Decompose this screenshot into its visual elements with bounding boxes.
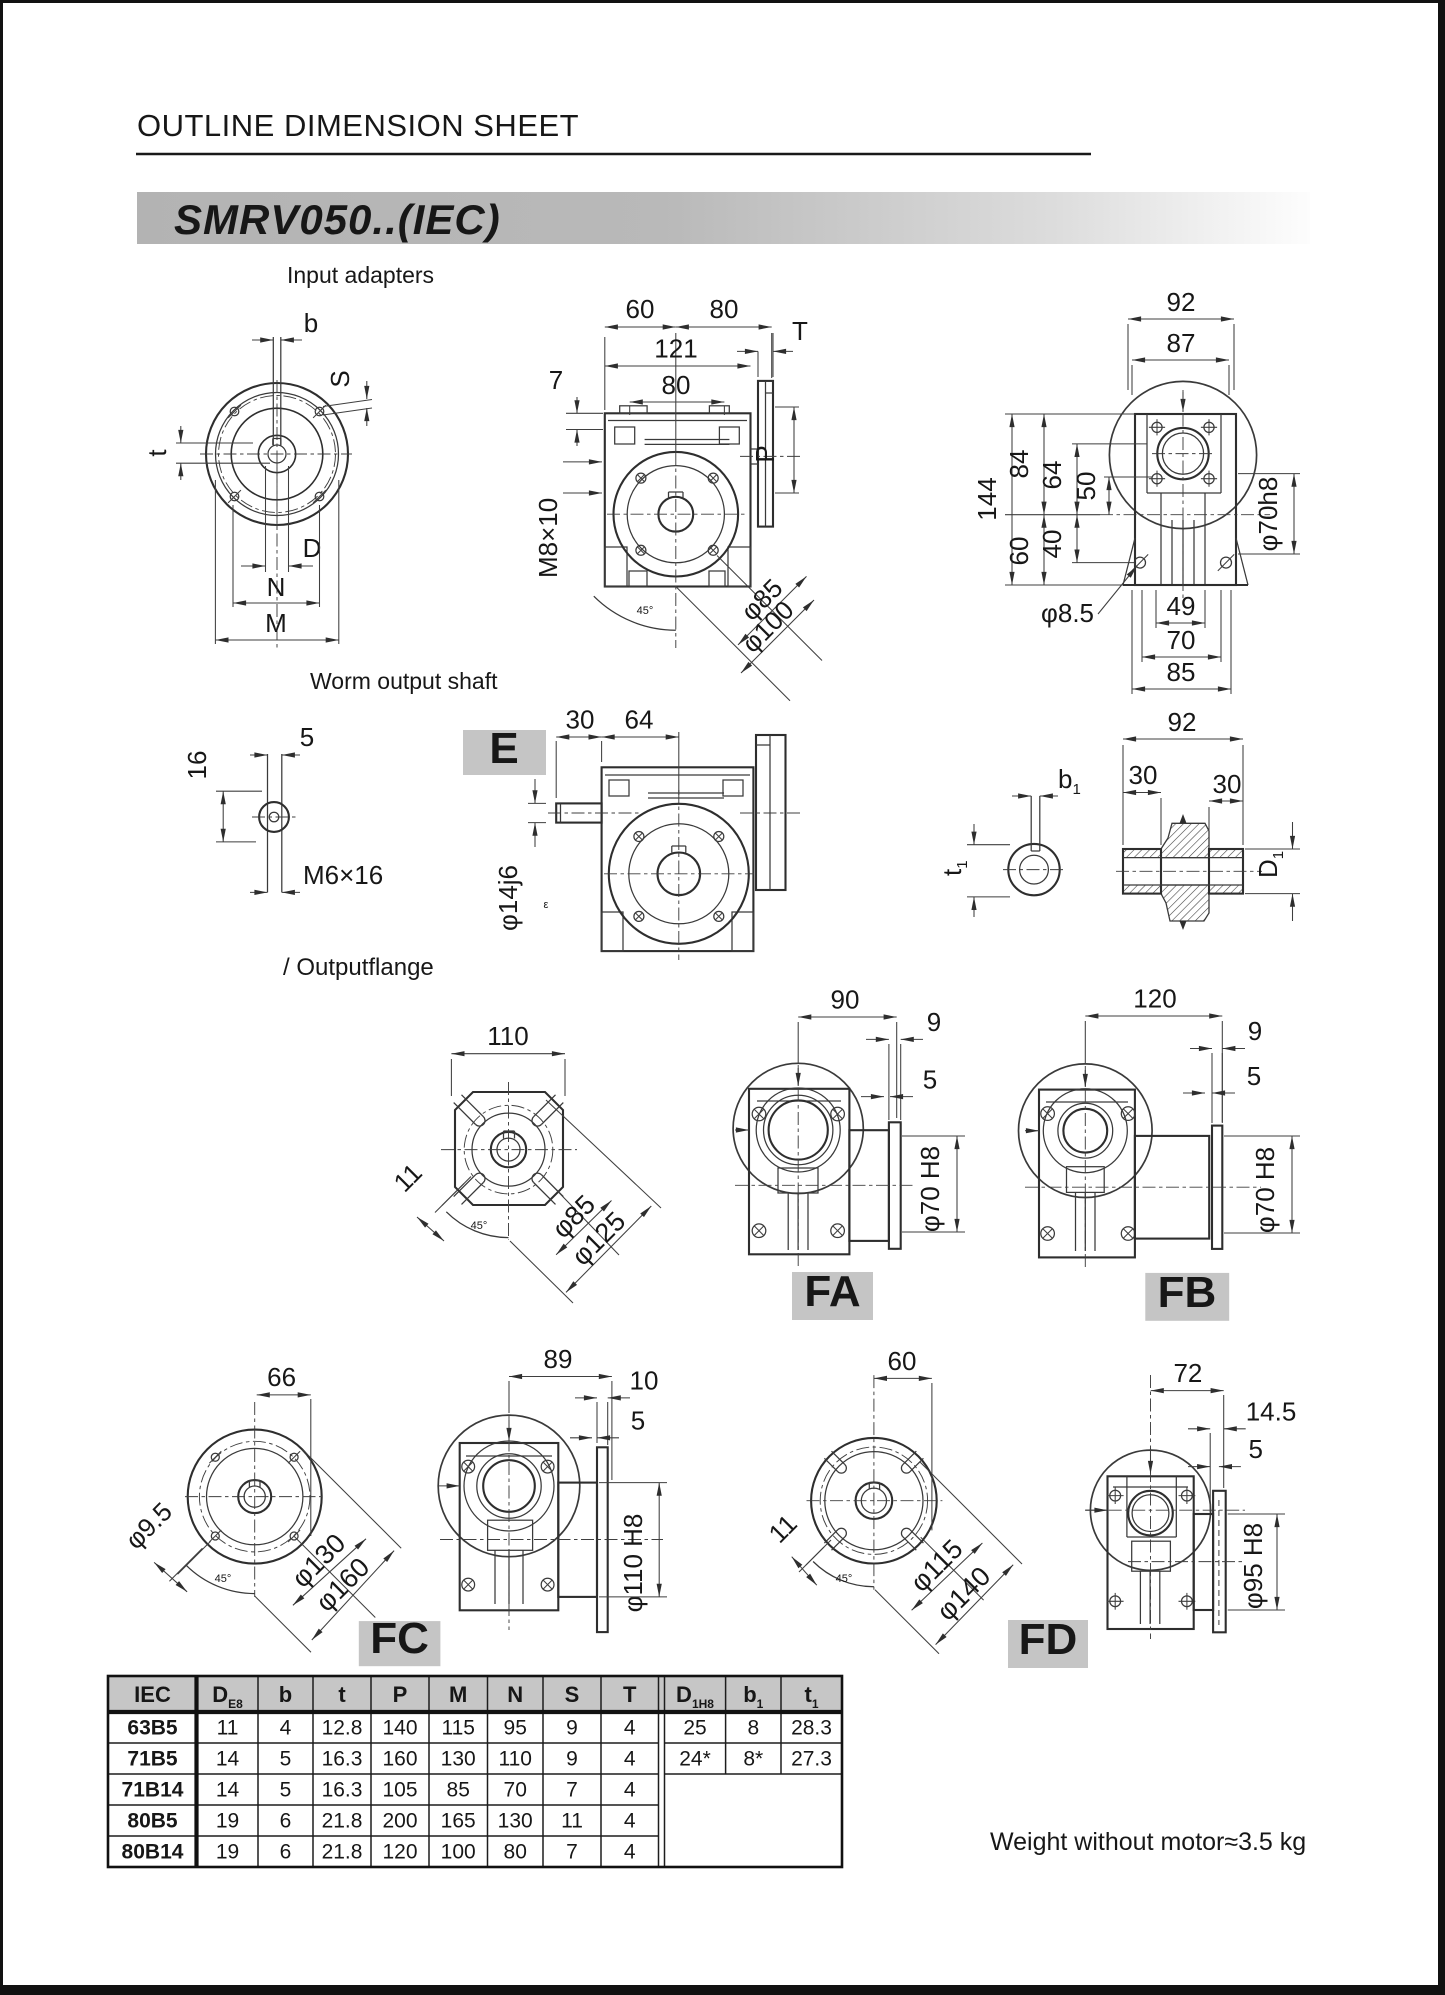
svg-text:b: b xyxy=(279,1682,292,1707)
svg-text:IEC: IEC xyxy=(134,1682,171,1707)
svg-text:6: 6 xyxy=(280,1810,292,1833)
svg-text:120: 120 xyxy=(382,1841,417,1864)
svg-text:92: 92 xyxy=(1167,287,1196,317)
svg-text:24*: 24* xyxy=(679,1748,711,1771)
svg-text:64: 64 xyxy=(625,705,654,735)
svg-text:16.3: 16.3 xyxy=(322,1748,363,1771)
svg-text:84: 84 xyxy=(1004,450,1034,479)
svg-text:5: 5 xyxy=(280,1748,292,1771)
svg-text:7: 7 xyxy=(566,1841,578,1864)
svg-text:P: P xyxy=(393,1682,408,1707)
svg-text:110: 110 xyxy=(498,1748,531,1771)
svg-text:M6×16: M6×16 xyxy=(303,860,383,890)
svg-text:21.8: 21.8 xyxy=(322,1841,363,1864)
svg-text:49: 49 xyxy=(1167,591,1196,621)
svg-text:S: S xyxy=(325,370,355,387)
svg-text:12.8: 12.8 xyxy=(322,1717,363,1740)
svg-text:OUTLINE DIMENSION SHEET: OUTLINE DIMENSION SHEET xyxy=(137,108,579,143)
svg-text:28.3: 28.3 xyxy=(791,1717,832,1740)
svg-text:80: 80 xyxy=(504,1841,527,1864)
svg-text:7: 7 xyxy=(549,365,563,395)
svg-text:80B14: 80B14 xyxy=(122,1841,184,1864)
svg-text:45°: 45° xyxy=(215,1573,232,1585)
svg-text:5: 5 xyxy=(631,1406,645,1436)
svg-text:27.3: 27.3 xyxy=(791,1748,832,1771)
svg-text:70: 70 xyxy=(1167,625,1196,655)
svg-text:90: 90 xyxy=(831,985,860,1015)
svg-text:115: 115 xyxy=(441,1717,474,1740)
svg-text:D: D xyxy=(303,533,322,563)
svg-text:6: 6 xyxy=(280,1841,292,1864)
svg-text:21.8: 21.8 xyxy=(322,1810,363,1833)
svg-text:66: 66 xyxy=(267,1362,296,1392)
svg-text:89: 89 xyxy=(544,1344,573,1374)
svg-text:19: 19 xyxy=(216,1841,239,1864)
svg-text:N: N xyxy=(267,572,286,602)
svg-text:60: 60 xyxy=(888,1346,917,1376)
svg-text:S: S xyxy=(565,1682,580,1707)
svg-text:60: 60 xyxy=(1004,537,1034,566)
svg-text:φ14j6: φ14j6 xyxy=(493,865,523,931)
svg-text:5: 5 xyxy=(300,722,314,752)
svg-text:T: T xyxy=(792,316,808,346)
svg-text:70: 70 xyxy=(504,1779,527,1802)
svg-text:9: 9 xyxy=(1248,1016,1262,1046)
svg-text:95: 95 xyxy=(504,1717,527,1740)
svg-text:t: t xyxy=(142,449,172,457)
svg-text:8*: 8* xyxy=(743,1748,763,1771)
svg-text:FD: FD xyxy=(1019,1615,1078,1664)
svg-text:14: 14 xyxy=(216,1748,240,1771)
svg-text:200: 200 xyxy=(382,1810,417,1833)
svg-text:T: T xyxy=(623,1682,637,1707)
svg-text:4: 4 xyxy=(624,1779,636,1802)
svg-text:Worm output shaft: Worm output shaft xyxy=(310,668,498,694)
svg-text:E: E xyxy=(489,724,518,773)
svg-text:φ70h8: φ70h8 xyxy=(1253,477,1283,552)
svg-text:9: 9 xyxy=(566,1717,578,1740)
svg-text:5: 5 xyxy=(280,1779,292,1802)
svg-text:φ70 H8: φ70 H8 xyxy=(915,1146,945,1232)
svg-text:40: 40 xyxy=(1037,530,1067,559)
svg-text:71B14: 71B14 xyxy=(122,1779,184,1802)
svg-text:92: 92 xyxy=(1168,707,1197,737)
svg-text:11: 11 xyxy=(561,1810,583,1833)
svg-text:45°: 45° xyxy=(836,1573,853,1585)
svg-text:14: 14 xyxy=(216,1779,240,1802)
svg-text:FA: FA xyxy=(804,1267,860,1316)
svg-text:16: 16 xyxy=(182,751,212,780)
svg-text:71B5: 71B5 xyxy=(127,1748,178,1771)
svg-text:SMRV050..(IEC): SMRV050..(IEC) xyxy=(174,196,501,243)
svg-text:7: 7 xyxy=(566,1779,578,1802)
svg-text:φ110 H8: φ110 H8 xyxy=(618,1514,648,1613)
svg-text:45°: 45° xyxy=(637,605,654,617)
svg-text:10: 10 xyxy=(630,1366,659,1396)
svg-text:M8×10: M8×10 xyxy=(533,498,563,578)
svg-text:5: 5 xyxy=(1247,1061,1261,1091)
svg-text:130: 130 xyxy=(498,1810,533,1833)
svg-text:87: 87 xyxy=(1167,328,1196,358)
svg-text:4: 4 xyxy=(624,1810,636,1833)
svg-text:4: 4 xyxy=(280,1717,292,1740)
svg-text:50: 50 xyxy=(1071,472,1101,501)
svg-text:144: 144 xyxy=(972,477,1002,520)
svg-text:5: 5 xyxy=(923,1065,937,1095)
svg-text:130: 130 xyxy=(441,1748,476,1771)
svg-text:72: 72 xyxy=(1173,1358,1202,1388)
svg-text:63B5: 63B5 xyxy=(127,1717,178,1740)
svg-text:121: 121 xyxy=(654,334,697,364)
svg-text:85: 85 xyxy=(1167,657,1196,687)
svg-text:11: 11 xyxy=(217,1717,239,1740)
svg-text:Weight without motor≈3.5 kg: Weight without motor≈3.5 kg xyxy=(990,1828,1306,1856)
svg-text:4: 4 xyxy=(624,1748,636,1771)
svg-text:P: P xyxy=(750,445,780,462)
svg-text:110: 110 xyxy=(487,1021,528,1051)
svg-text:45°: 45° xyxy=(471,1220,488,1232)
svg-text:30: 30 xyxy=(1129,760,1158,790)
svg-text:64: 64 xyxy=(1037,461,1067,490)
svg-text:80: 80 xyxy=(662,370,691,400)
svg-text:8: 8 xyxy=(747,1717,759,1740)
svg-text:M: M xyxy=(265,608,287,638)
svg-text:9: 9 xyxy=(927,1007,941,1037)
svg-text:4: 4 xyxy=(624,1717,636,1740)
svg-text:160: 160 xyxy=(382,1748,417,1771)
svg-text:5: 5 xyxy=(1248,1434,1262,1464)
svg-text:100: 100 xyxy=(441,1841,476,1864)
svg-text:9: 9 xyxy=(566,1748,578,1771)
svg-text:120: 120 xyxy=(1133,984,1176,1014)
svg-text:FC: FC xyxy=(370,1614,429,1663)
svg-text:14.5: 14.5 xyxy=(1246,1397,1297,1427)
svg-text:80: 80 xyxy=(710,294,739,324)
svg-text:80B5: 80B5 xyxy=(127,1810,178,1833)
svg-text:φ70 H8: φ70 H8 xyxy=(1250,1147,1280,1233)
svg-text:30: 30 xyxy=(566,705,595,735)
svg-text:t: t xyxy=(338,1682,346,1707)
svg-text:85: 85 xyxy=(447,1779,470,1802)
svg-text:25: 25 xyxy=(683,1717,706,1740)
svg-text:140: 140 xyxy=(382,1717,417,1740)
svg-text:N: N xyxy=(507,1682,523,1707)
svg-text:105: 105 xyxy=(382,1779,417,1802)
svg-text:Input adapters: Input adapters xyxy=(287,262,434,288)
svg-text:60: 60 xyxy=(626,294,655,324)
svg-text:b: b xyxy=(304,308,318,338)
svg-text:φ95 H8: φ95 H8 xyxy=(1238,1523,1268,1609)
svg-text:ε: ε xyxy=(544,899,549,911)
svg-text:φ8.5: φ8.5 xyxy=(1041,598,1094,628)
svg-text:M: M xyxy=(449,1682,467,1707)
svg-text:16.3: 16.3 xyxy=(322,1779,363,1802)
svg-text:FB: FB xyxy=(1158,1268,1217,1317)
svg-text:4: 4 xyxy=(624,1841,636,1864)
svg-text:/ Outputflange: / Outputflange xyxy=(283,954,434,981)
svg-text:165: 165 xyxy=(441,1810,476,1833)
svg-text:19: 19 xyxy=(216,1810,239,1833)
svg-text:30: 30 xyxy=(1213,769,1242,799)
